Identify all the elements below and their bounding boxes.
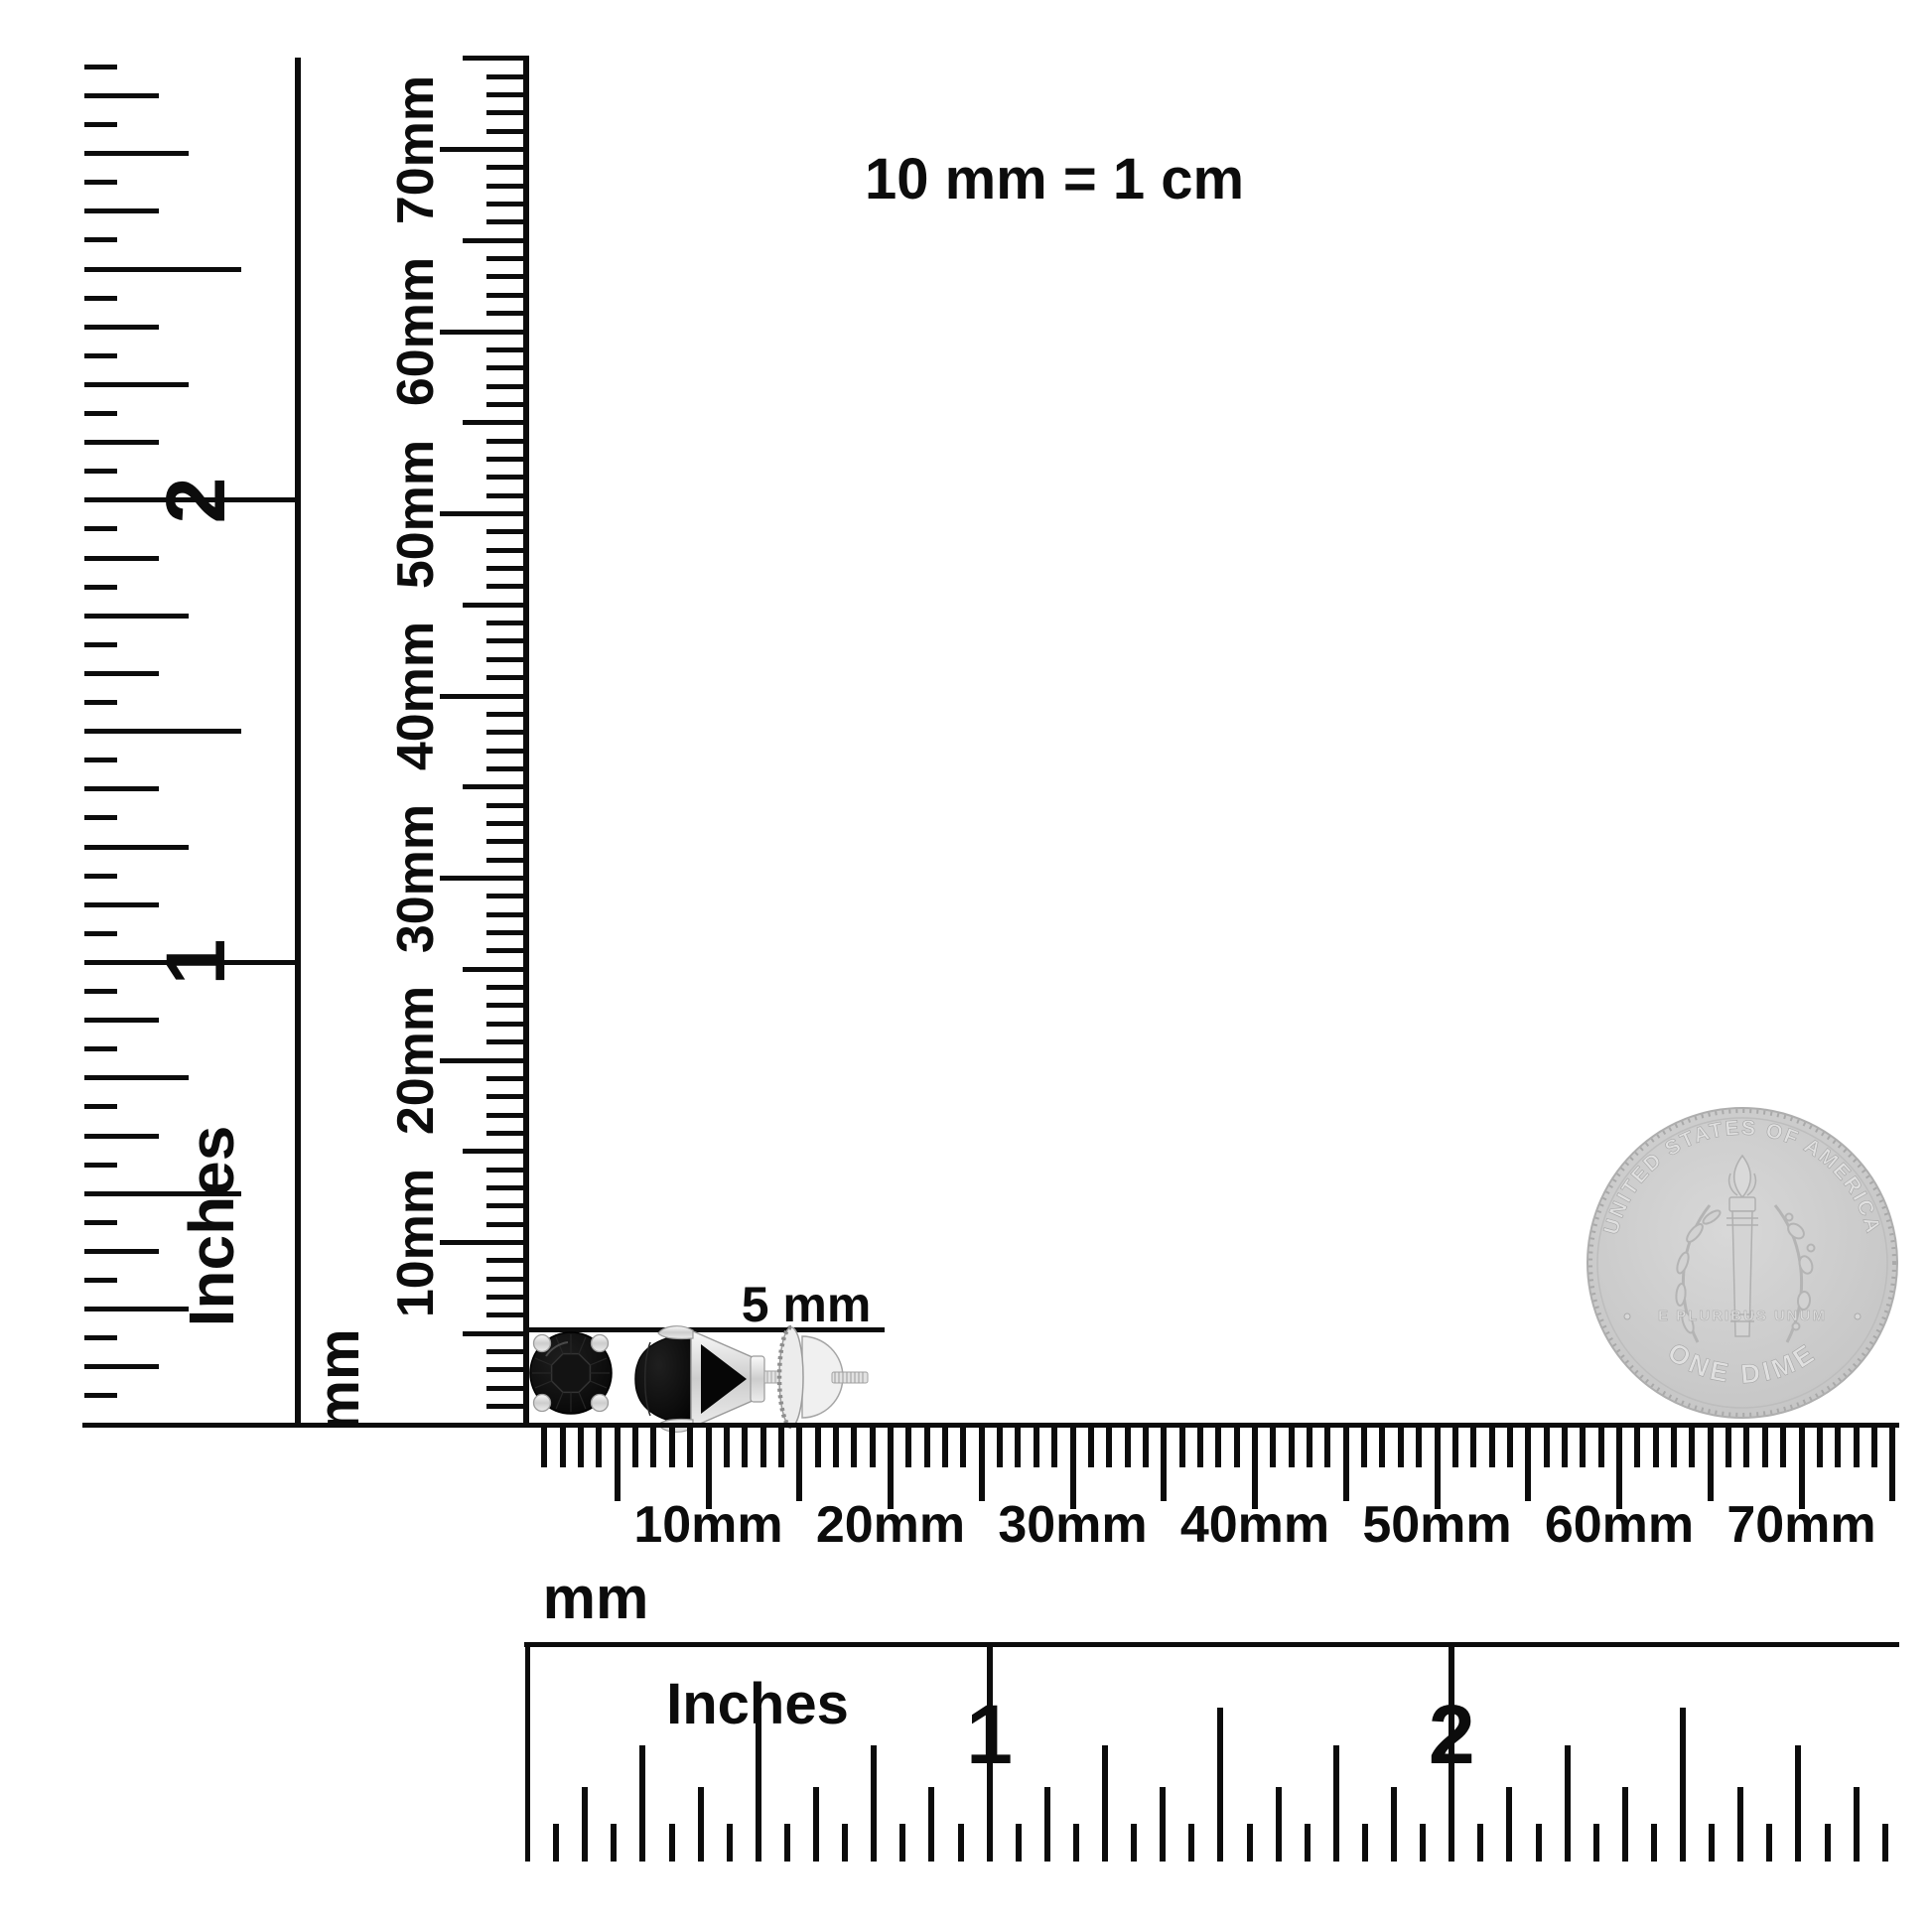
tick-left-inches [84,786,159,791]
ruler-edge-left-inches [295,58,301,1428]
tick-bottom-mm [1125,1428,1131,1467]
tick-bottom-mm [1854,1428,1860,1467]
tick-bottom-inches [1737,1787,1743,1862]
tick-bottom-inches [1477,1824,1483,1862]
tick-left-mm [486,1349,524,1354]
tick-bottom-mm [1708,1428,1714,1501]
tick-left-inches [84,989,117,994]
tick-left-mm [486,365,524,370]
tick-bottom-mm [1743,1428,1749,1467]
tick-bottom-inches [958,1824,964,1862]
tick-left-mm [486,1022,524,1027]
tick-bottom-mm [1562,1428,1568,1467]
tick-left-mm [486,529,524,534]
tick-left-mm [486,311,524,316]
tick-bottom-inches [1188,1824,1194,1862]
ruler-label-left-mm: 70mm [390,74,442,223]
tick-bottom-mm [632,1428,638,1467]
tick-bottom-mm [1598,1428,1604,1467]
tick-left-mm [486,1094,524,1099]
tick-bottom-inches [669,1824,675,1862]
tick-left-inches [84,296,117,301]
tick-bottom-inches [1276,1787,1282,1862]
tick-bottom-mm [1234,1428,1240,1467]
tick-bottom-mm [1034,1428,1039,1467]
tick-left-inches [84,180,117,185]
ruler-label-bottom-mm: 50mm [1362,1499,1511,1551]
stud-front-view [530,1332,612,1414]
tick-bottom-mm [687,1428,693,1467]
tick-left-inches [84,1104,117,1109]
tick-left-inches [84,440,159,445]
tick-left-mm [486,1203,524,1208]
product-measurement-image: 10 mm = 1 cm 5 mm Inches mm mm Inches [0,0,1932,1932]
left-inches-unit-label: Inches [180,1126,243,1327]
tick-left-mm [486,293,524,298]
ruler-label-left-mm: 10mm [390,1168,442,1316]
tick-bottom-mm [560,1428,566,1467]
ruler-number-bottom-inches: 1 [966,1693,1013,1776]
tick-left-inches [84,614,189,619]
tick-bottom-inches [1882,1824,1888,1862]
tick-bottom-mm [1507,1428,1513,1467]
tick-left-inches [84,1307,189,1311]
tick-left-mm [486,749,524,754]
tick-left-inches [84,729,241,734]
tick-bottom-mm [960,1428,966,1467]
tick-left-mm [486,1386,524,1391]
coin-motto: E PLURIBUS UNUM [1658,1308,1827,1324]
tick-bottom-mm [1179,1428,1185,1467]
coin-dot-left [1624,1313,1630,1319]
tick-bottom-mm [1197,1428,1203,1467]
tick-left-inches [84,931,117,936]
tick-bottom-mm [833,1428,839,1467]
tick-bottom-mm [1452,1428,1458,1467]
bottom-mm-unit-label: mm [543,1569,649,1628]
tick-bottom-mm [1689,1428,1695,1467]
tick-bottom-mm [1289,1428,1295,1467]
tick-bottom-inches [1680,1708,1686,1862]
earring-pair-photo [516,1309,884,1434]
tick-bottom-mm [870,1428,876,1467]
tick-bottom-mm [997,1428,1003,1467]
tick-bottom-inches [1622,1787,1628,1862]
tick-bottom-inches [1102,1745,1108,1862]
tick-left-mm [486,1367,524,1372]
tick-left-inches [84,902,159,907]
tick-bottom-mm [1088,1428,1094,1467]
tick-left-mm [463,603,524,608]
tick-left-mm [463,1331,524,1336]
ruler-label-left-mm: 20mm [390,986,442,1135]
tick-left-inches [84,815,117,820]
screw-back-disc [779,1327,803,1427]
tick-bottom-inches [899,1824,905,1862]
tick-left-inches [84,700,117,705]
tick-bottom-mm [924,1428,930,1467]
tick-left-mm [486,165,524,170]
tick-bottom-inches [1160,1787,1166,1862]
tick-left-mm [486,766,524,771]
tick-left-mm [486,730,524,735]
tick-left-inches [84,585,117,590]
tick-left-mm [486,858,524,863]
tick-bottom-mm [1580,1428,1586,1467]
tick-left-mm [486,402,524,407]
tick-left-inches [84,237,117,242]
tick-left-mm [486,1168,524,1173]
tick-bottom-inches [813,1787,819,1862]
tick-bottom-inches [1247,1824,1253,1862]
tick-left-inches [84,469,117,474]
ruler-edge-bottom-mm [82,1423,1899,1428]
tick-left-mm [486,548,524,553]
tick-bottom-mm [1762,1428,1768,1467]
tick-left-mm [486,821,524,826]
tick-left-inches [84,1278,117,1283]
tick-left-inches [84,267,241,272]
tick-bottom-inches [871,1745,877,1862]
ruler-label-bottom-mm: 40mm [1180,1499,1329,1551]
tick-left-mm [486,712,524,717]
tick-bottom-mm [1817,1428,1823,1467]
tick-bottom-inches [1651,1824,1657,1862]
tick-bottom-mm [1361,1428,1367,1467]
tick-left-mm [486,803,524,808]
tick-bottom-mm [1544,1428,1550,1467]
tick-left-inches [84,1134,159,1139]
tick-left-mm [486,948,524,953]
tick-bottom-mm [1106,1428,1112,1467]
ruler-label-left-mm: 30mm [390,803,442,952]
tick-bottom-mm [1215,1428,1221,1467]
tick-left-mm [486,1185,524,1190]
ruler-number-left-inches: 1 [154,939,237,986]
ruler-label-bottom-mm: 60mm [1545,1499,1694,1551]
tick-bottom-mm [1653,1428,1659,1467]
tick-left-inches [84,556,159,561]
black-diamond-side [635,1333,695,1425]
tick-left-mm [486,92,524,97]
tick-left-inches [84,208,159,213]
tick-bottom-inches [1854,1787,1860,1862]
tick-left-inches [84,382,189,387]
tick-left-mm [486,184,524,189]
ruler-label-bottom-mm: 10mm [633,1499,782,1551]
tick-bottom-inches [1073,1824,1079,1862]
tick-bottom-inches [1709,1824,1715,1862]
tick-left-mm [486,584,524,589]
tick-left-inches [84,1191,241,1196]
tick-bottom-mm [742,1428,748,1467]
tick-left-inches [84,1335,117,1340]
tick-bottom-mm [1671,1428,1677,1467]
tick-left-mm [486,110,524,115]
tick-left-mm [486,621,524,625]
tick-bottom-inches [1362,1824,1368,1862]
tick-bottom-inches [1333,1745,1339,1862]
tick-left-mm [486,1277,524,1282]
tick-bottom-mm [1161,1428,1167,1501]
tick-left-inches [84,1018,159,1023]
tick-left-inches [84,93,159,98]
tick-left-mm [486,74,524,79]
tick-bottom-mm [1835,1428,1841,1467]
tick-bottom-inches [1016,1824,1022,1862]
tick-bottom-mm [1307,1428,1312,1467]
tick-left-mm [486,384,524,389]
tick-bottom-mm [979,1428,985,1501]
tick-left-inches [84,151,189,156]
ruler-zero-bottom-inches [525,1646,530,1862]
tick-bottom-mm [905,1428,911,1467]
tick-left-mm [486,839,524,844]
stud-side-view [635,1326,790,1433]
tick-left-inches [84,1393,117,1398]
tick-left-mm [463,420,524,425]
tick-left-mm [486,274,524,279]
tick-left-mm [486,985,524,990]
tick-left-inches [84,122,117,127]
ruler-label-bottom-mm: 20mm [816,1499,965,1551]
tick-left-mm [440,330,524,335]
tick-left-mm [486,493,524,498]
ruler-label-left-mm: 40mm [390,621,442,770]
tick-bottom-mm [724,1428,730,1467]
tick-bottom-inches [1825,1824,1831,1862]
tick-left-inches [84,671,159,676]
diamond-table-facet [552,1354,591,1393]
tick-left-mm [486,675,524,680]
tick-left-mm [486,1076,524,1081]
tick-left-mm [486,930,524,935]
tick-left-mm [486,1113,524,1118]
tick-left-mm [486,475,524,480]
tick-bottom-inches [1305,1824,1311,1862]
tick-left-inches [84,642,117,647]
tick-left-mm [486,439,524,444]
tick-bottom-inches [1565,1745,1571,1862]
ruler-edge-bottom-inches [524,1642,1899,1647]
tick-left-mm [463,238,524,243]
tick-left-inches [84,845,189,850]
tick-bottom-inches [1217,1708,1223,1862]
tick-left-mm [486,1312,524,1317]
tick-left-mm [486,657,524,662]
tick-bottom-mm [851,1428,857,1467]
tick-bottom-mm [1015,1428,1021,1467]
tick-left-inches [84,1364,159,1369]
tick-bottom-mm [1416,1428,1422,1467]
ruler-label-left-mm: 60mm [390,257,442,406]
tick-left-mm [486,219,524,224]
tick-left-mm [440,1240,524,1245]
tick-left-inches [84,758,117,762]
ruler-label-bottom-mm: 70mm [1726,1499,1875,1551]
tick-left-mm [486,566,524,571]
tick-left-mm [486,912,524,917]
tick-bottom-inches [582,1787,588,1862]
tick-left-mm [486,894,524,898]
tick-left-mm [463,1149,524,1154]
scale-note: 10 mm = 1 cm [865,151,1244,208]
tick-bottom-inches [1044,1787,1050,1862]
tick-left-mm [486,1295,524,1300]
tick-bottom-mm [1398,1428,1404,1467]
ruler-number-left-inches: 2 [154,477,237,523]
tick-bottom-inches [698,1787,704,1862]
tick-bottom-mm [1270,1428,1276,1467]
tick-bottom-inches [1766,1824,1772,1862]
tick-bottom-mm [1051,1428,1057,1467]
tick-left-inches [84,353,117,358]
tick-bottom-inches [1391,1787,1397,1862]
tick-left-inches [84,874,117,879]
tick-bottom-mm [541,1428,547,1467]
tick-left-inches [84,526,117,531]
tick-bottom-inches [639,1745,645,1862]
tick-bottom-mm [778,1428,784,1467]
tick-bottom-mm [1489,1428,1495,1467]
tick-left-inches [84,1249,159,1254]
tick-left-mm [440,694,524,699]
tick-bottom-inches [1506,1787,1512,1862]
tick-bottom-mm [596,1428,602,1467]
tick-bottom-mm [1889,1428,1895,1501]
tick-left-inches [84,1046,117,1051]
tick-bottom-mm [578,1428,584,1467]
tick-left-mm [486,347,524,352]
tick-bottom-inches [727,1824,733,1862]
ruler-number-bottom-inches: 2 [1429,1693,1475,1776]
screw-back [779,1327,868,1427]
tick-left-mm [486,1003,524,1008]
tick-left-mm [486,1222,524,1227]
tick-bottom-inches [928,1787,934,1862]
tick-left-mm [486,256,524,261]
tick-bottom-inches [1420,1824,1426,1862]
ruler-label-left-mm: 50mm [390,439,442,588]
tick-left-inches [84,1220,117,1225]
tick-bottom-mm [1379,1428,1385,1467]
tick-bottom-mm [1525,1428,1531,1501]
tick-left-mm [463,56,524,61]
tick-left-mm [463,784,524,789]
tick-bottom-mm [815,1428,821,1467]
tick-bottom-mm [1143,1428,1149,1467]
tick-left-mm [486,457,524,462]
tick-bottom-mm [1871,1428,1877,1467]
tick-bottom-mm [942,1428,948,1467]
tick-bottom-inches [1593,1824,1599,1862]
tick-left-mm [486,638,524,643]
tick-left-mm [463,967,524,972]
tick-left-mm [440,876,524,881]
tick-bottom-mm [615,1428,621,1501]
coin-dot-right [1855,1313,1861,1319]
tick-bottom-mm [760,1428,766,1467]
tick-bottom-mm [669,1428,675,1467]
tick-bottom-mm [1324,1428,1330,1467]
tick-left-mm [440,1058,524,1063]
tick-bottom-inches [756,1708,761,1862]
tick-bottom-mm [796,1428,802,1501]
tick-left-mm [486,1404,524,1409]
tick-bottom-inches [842,1824,848,1862]
tick-left-mm [486,1039,524,1044]
tick-bottom-inches [553,1824,559,1862]
tick-left-inches [84,325,159,330]
tick-left-mm [486,129,524,134]
dime-coin: UNITED STATES OF AMERICA ONE DIME E PLUR… [1586,1106,1899,1420]
ruler-label-bottom-mm: 30mm [998,1499,1147,1551]
tick-left-mm [486,1131,524,1136]
tick-bottom-mm [1634,1428,1640,1467]
tick-left-mm [440,511,524,516]
tick-left-inches [84,65,117,69]
tick-left-mm [440,147,524,152]
tick-bottom-inches [784,1824,790,1862]
setting-back [751,1356,764,1402]
tick-left-mm [486,1258,524,1263]
tick-bottom-mm [1470,1428,1476,1467]
tick-left-inches [84,411,117,416]
tick-bottom-mm [1780,1428,1786,1467]
tick-bottom-mm [1725,1428,1731,1467]
tick-bottom-mm [1343,1428,1349,1501]
tick-bottom-inches [1795,1745,1801,1862]
tick-bottom-inches [1131,1824,1137,1862]
tick-left-mm [486,202,524,207]
tick-left-inches [84,1163,117,1168]
left-mm-unit-label: mm [311,1328,368,1431]
tick-bottom-inches [611,1824,617,1862]
tick-bottom-mm [650,1428,656,1467]
tick-left-inches [84,1075,189,1080]
tick-bottom-inches [1536,1824,1542,1862]
prong-top [658,1326,693,1339]
